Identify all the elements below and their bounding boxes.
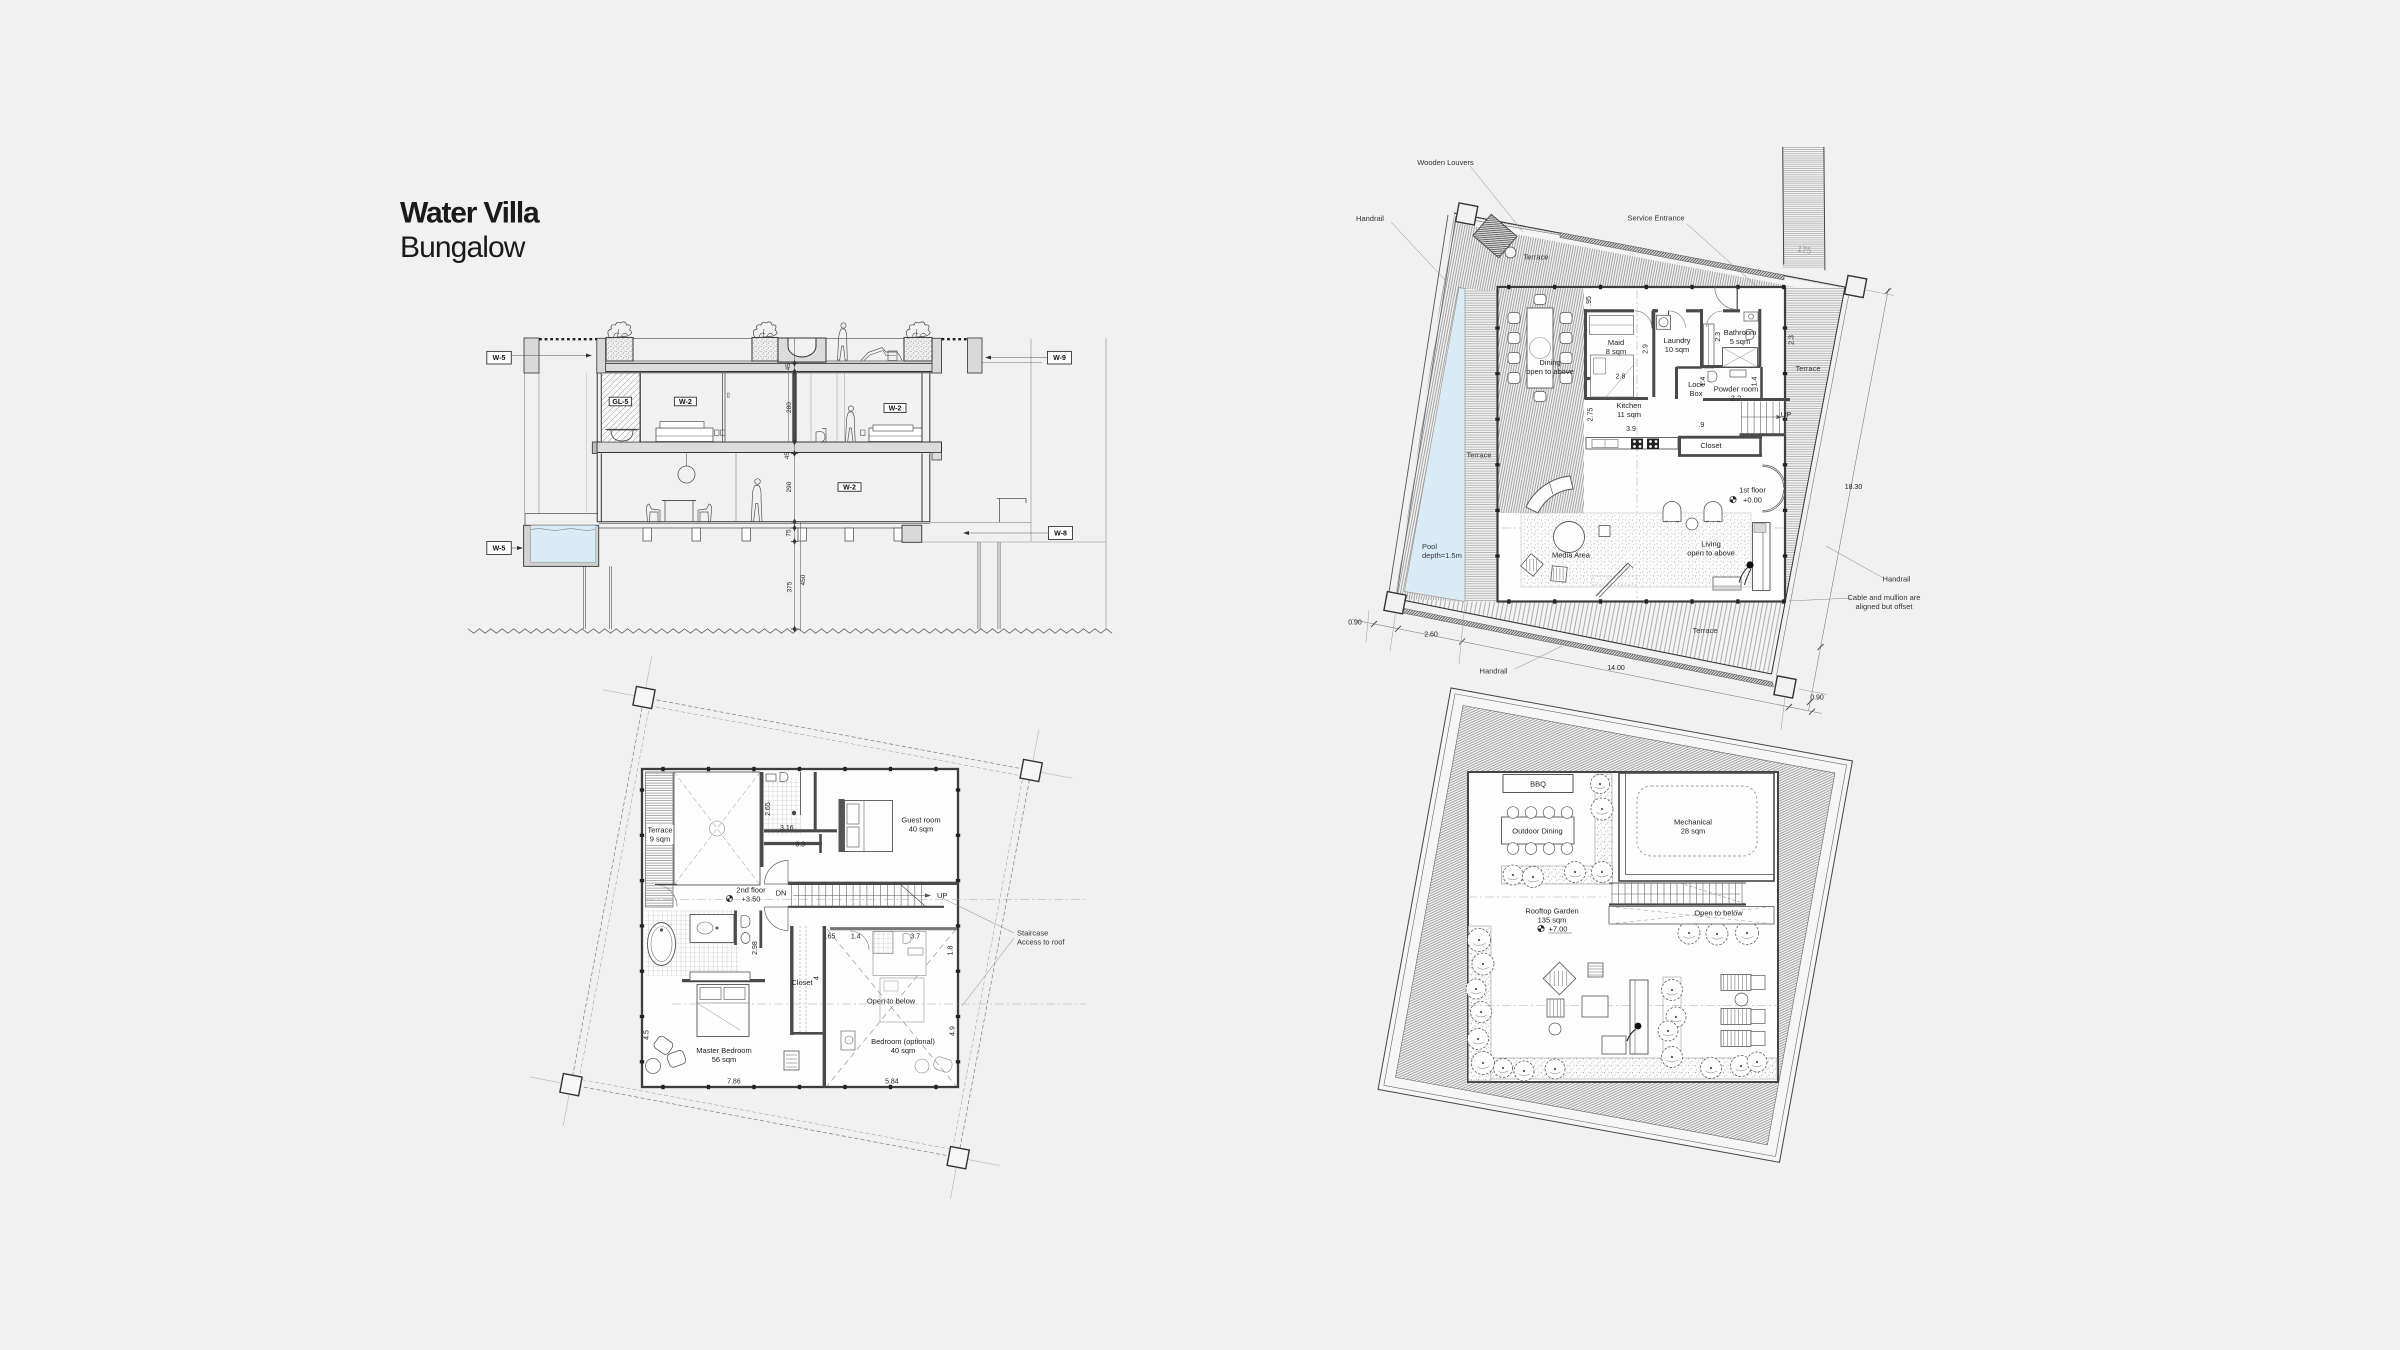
svg-text:135 sqm: 135 sqm	[1538, 916, 1567, 925]
svg-text:3.16: 3.16	[780, 825, 794, 832]
svg-text:Dining: Dining	[1539, 358, 1560, 367]
svg-text:UP: UP	[937, 891, 947, 900]
svg-text:4.5: 4.5	[644, 1030, 651, 1040]
svg-text:18.30: 18.30	[1845, 484, 1863, 491]
svg-text:Closet: Closet	[1700, 441, 1722, 450]
svg-text:28 sqm: 28 sqm	[1681, 827, 1706, 836]
svg-text:Open to below: Open to below	[1694, 909, 1743, 918]
svg-text:Terrace: Terrace	[1795, 364, 1820, 373]
svg-text:Wooden Louvers: Wooden Louvers	[1417, 158, 1474, 167]
svg-text:Staircase: Staircase	[1017, 929, 1048, 938]
svg-text:Box: Box	[1690, 389, 1703, 398]
svg-text:DN: DN	[776, 888, 787, 897]
svg-text:BBQ: BBQ	[1530, 780, 1546, 789]
svg-text:Terrace: Terrace	[647, 826, 672, 835]
svg-text:W-2: W-2	[843, 484, 856, 491]
svg-text:Terrace: Terrace	[1466, 451, 1491, 460]
svg-text:375: 375	[787, 581, 794, 592]
svg-text:3.9: 3.9	[1626, 426, 1636, 433]
svg-text:2.60: 2.60	[1424, 632, 1438, 639]
svg-text:Bedroom (optional): Bedroom (optional)	[871, 1037, 935, 1046]
svg-text:40 sqm: 40 sqm	[891, 1046, 916, 1055]
svg-text:Bungalow: Bungalow	[400, 231, 526, 264]
svg-text:280: 280	[786, 402, 793, 413]
svg-text:W-8: W-8	[1054, 530, 1067, 537]
svg-text:Maid: Maid	[1608, 338, 1624, 347]
svg-text:5.84: 5.84	[885, 1078, 899, 1085]
svg-text:Media Area: Media Area	[1552, 551, 1591, 560]
svg-text:14.00: 14.00	[1607, 665, 1625, 672]
svg-text:Access to roof: Access to roof	[1017, 938, 1065, 947]
svg-text:2.9: 2.9	[1643, 344, 1650, 354]
svg-text:W-9: W-9	[1053, 355, 1066, 362]
svg-text:Open to below: Open to below	[867, 997, 916, 1006]
svg-text:Handrail: Handrail	[1883, 575, 1911, 584]
svg-text:2nd floor: 2nd floor	[736, 885, 766, 894]
svg-text:Living: Living	[1701, 540, 1721, 549]
svg-text:+3.50: +3.50	[742, 894, 761, 903]
svg-text:9 sqm: 9 sqm	[650, 835, 670, 844]
svg-text:GL-5: GL-5	[612, 399, 628, 406]
svg-text:Laundry: Laundry	[1663, 336, 1690, 345]
svg-text:Master Bedroom: Master Bedroom	[696, 1046, 751, 1055]
svg-text:Water Villa: Water Villa	[400, 197, 540, 230]
svg-text:+7.00: +7.00	[1549, 925, 1568, 934]
svg-text:.65: .65	[826, 934, 836, 941]
svg-text:2.65: 2.65	[765, 802, 772, 816]
svg-text:Guest room: Guest room	[901, 816, 940, 825]
svg-text:45: 45	[785, 363, 792, 371]
svg-text:Outdoor Dining: Outdoor Dining	[1512, 827, 1562, 836]
svg-text:3.3: 3.3	[795, 842, 805, 849]
svg-text:+0.00: +0.00	[1743, 496, 1762, 505]
svg-text:2.8: 2.8	[1616, 374, 1626, 381]
svg-text:W-5: W-5	[493, 355, 506, 362]
svg-text:1.4: 1.4	[851, 934, 861, 941]
svg-text:5 sqm: 5 sqm	[1730, 337, 1750, 346]
svg-text:Terrace: Terrace	[1523, 253, 1548, 262]
svg-text:Terrace: Terrace	[1692, 626, 1717, 635]
svg-text:290: 290	[786, 481, 793, 492]
svg-text:2.3: 2.3	[1789, 335, 1796, 345]
svg-text:2.98: 2.98	[752, 941, 759, 955]
svg-text:4: 4	[814, 976, 821, 980]
svg-text:open to above: open to above	[1687, 549, 1735, 558]
svg-text:2.3: 2.3	[1715, 332, 1722, 342]
svg-text:450: 450	[800, 574, 807, 585]
svg-text:Bathroom: Bathroom	[1724, 328, 1757, 337]
svg-text:75: 75	[786, 529, 793, 537]
svg-text:1.4: 1.4	[1752, 377, 1759, 387]
svg-text:1.4: 1.4	[1700, 377, 1707, 387]
svg-text:Handrail: Handrail	[1356, 214, 1384, 223]
svg-text:Handrail: Handrail	[1480, 667, 1508, 676]
svg-text:Pool: Pool	[1422, 542, 1437, 551]
svg-text:40 sqm: 40 sqm	[909, 825, 934, 834]
svg-text:0.90: 0.90	[1810, 695, 1824, 702]
svg-text:Cable and mullion are: Cable and mullion are	[1848, 593, 1921, 602]
svg-text:Kitchen: Kitchen	[1616, 401, 1641, 410]
svg-text:3.7: 3.7	[910, 934, 920, 941]
svg-text:Rooftop Garden: Rooftop Garden	[1525, 907, 1578, 916]
svg-text:Service Entrance: Service Entrance	[1627, 214, 1684, 223]
svg-text:45: 45	[784, 452, 791, 460]
svg-text:8 sqm: 8 sqm	[1606, 347, 1626, 356]
svg-text:11 sqm: 11 sqm	[1617, 410, 1641, 419]
svg-text:Closet: Closet	[791, 978, 813, 987]
svg-text:W-2: W-2	[889, 405, 902, 412]
svg-text:56 sqm: 56 sqm	[712, 1055, 737, 1064]
svg-text:7.86: 7.86	[727, 1078, 741, 1085]
svg-text:depth=1.5m: depth=1.5m	[1422, 551, 1462, 560]
svg-text:.95: .95	[1586, 296, 1593, 306]
svg-text:10 sqm: 10 sqm	[1665, 345, 1690, 354]
svg-text:W-2: W-2	[679, 399, 692, 406]
svg-text:UP: UP	[1781, 410, 1791, 419]
svg-text:.9: .9	[1698, 422, 1704, 429]
svg-text:aligned but offset: aligned but offset	[1856, 602, 1914, 611]
svg-text:open to above: open to above	[1526, 367, 1574, 376]
svg-text:4.9: 4.9	[950, 1026, 957, 1036]
svg-text:W-5: W-5	[493, 545, 506, 552]
svg-text:1.8: 1.8	[948, 946, 955, 956]
svg-text:2.75: 2.75	[1587, 408, 1594, 422]
svg-text:0.90: 0.90	[1348, 620, 1362, 627]
svg-text:Mechanical: Mechanical	[1674, 818, 1712, 827]
svg-text:1st floor: 1st floor	[1739, 486, 1766, 495]
